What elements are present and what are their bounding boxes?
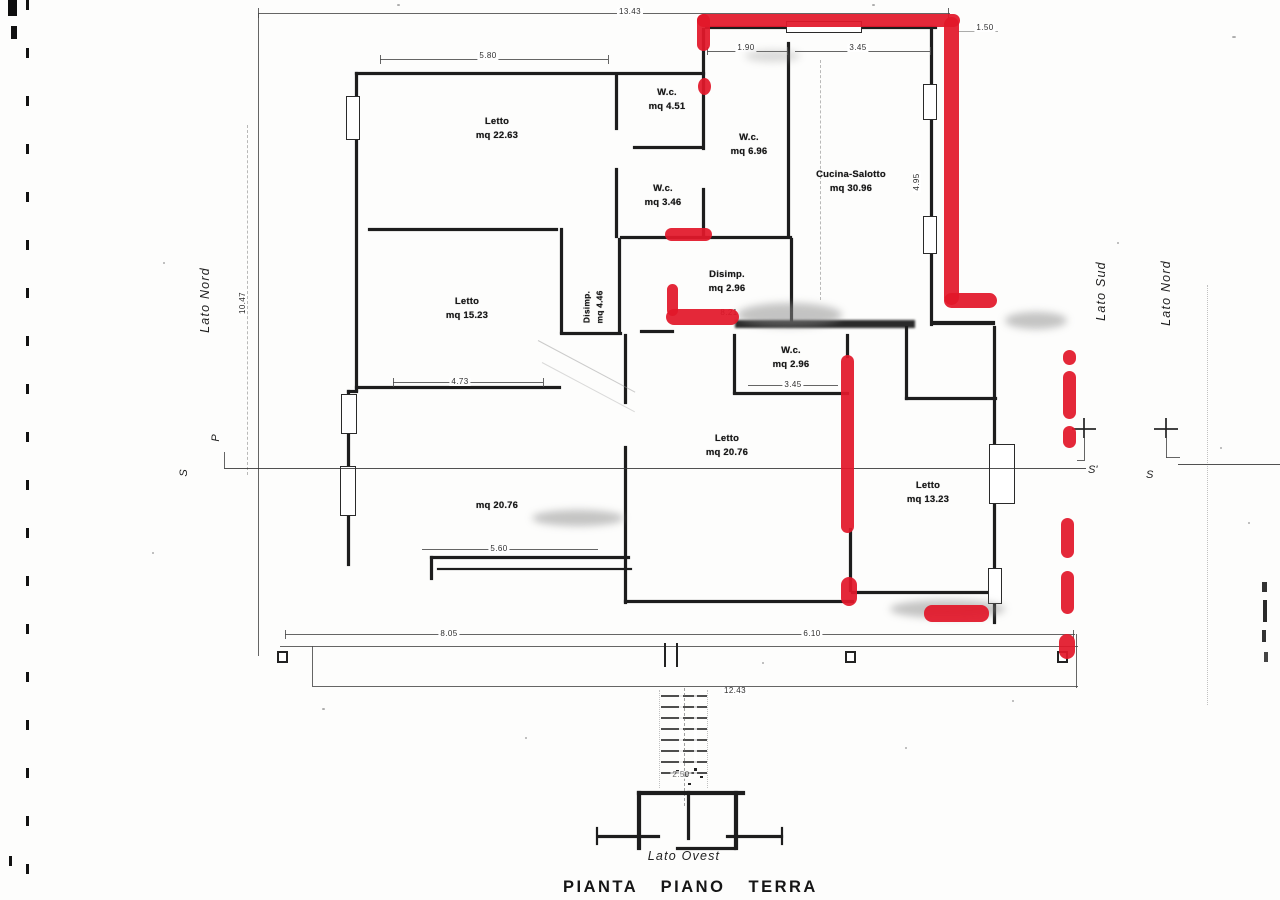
floor-plan-drawing: P S S' S 13.43 5.80 1.90 3.45 1.50 10.47… xyxy=(0,0,1280,900)
section-marker-s-prime: S' xyxy=(1088,464,1097,476)
wall-segment xyxy=(355,386,561,389)
wall-segment xyxy=(355,72,705,75)
wall-segment xyxy=(618,238,621,334)
room-label-bedroom-center: Lettomq 20.76 xyxy=(706,432,748,461)
side-label-west-bottom: Lato Ovest xyxy=(648,849,720,863)
dimension-tick xyxy=(608,55,609,64)
dimension-label: 2.50 xyxy=(670,771,691,779)
boundary-line xyxy=(258,13,259,656)
scan-speck xyxy=(397,4,400,6)
porch-wall xyxy=(734,791,738,850)
scan-speck xyxy=(762,662,764,664)
section-marker-p: P xyxy=(210,434,222,441)
side-label-north-left: Lato Nord xyxy=(198,267,212,333)
stair-mark xyxy=(688,783,691,785)
room-label-bedroom-e: Lettomq 13.23 xyxy=(907,479,949,508)
scan-speck xyxy=(1117,242,1119,244)
scan-fold-line xyxy=(26,0,29,900)
porch-wall xyxy=(726,835,783,838)
room-label-wc-2: W.c.mq 3.46 xyxy=(645,182,682,211)
wall-segment xyxy=(930,26,933,326)
room-label-hallway-2: Disimp.mq 4.46 xyxy=(580,290,606,323)
window-symbol xyxy=(988,568,1002,604)
scan-speck xyxy=(152,552,154,554)
scanned-floor-plan-page: P S S' S 13.43 5.80 1.90 3.45 1.50 10.47… xyxy=(0,0,1280,900)
scan-speck xyxy=(322,708,325,710)
plan-title: PIANTA PIANO TERRA xyxy=(563,878,818,897)
red-marker-stroke xyxy=(665,228,712,241)
stair-edge xyxy=(707,690,708,788)
lot-line xyxy=(247,125,248,475)
wall-segment xyxy=(560,228,563,334)
smudge-mark xyxy=(745,50,800,62)
boundary-line xyxy=(1076,634,1077,688)
wall-segment xyxy=(624,334,627,404)
red-marker-dot xyxy=(698,78,711,95)
dimension-label: 13.43 xyxy=(617,8,643,16)
room-label-wc-4: W.c.mq 2.96 xyxy=(773,344,810,373)
dimension-line xyxy=(285,634,1075,635)
stair-mark xyxy=(700,776,703,778)
dimension-tick xyxy=(543,378,544,387)
scan-speck xyxy=(1264,652,1268,662)
section-cross xyxy=(1083,418,1085,438)
wall-segment xyxy=(733,334,736,394)
scan-speck xyxy=(1263,600,1267,622)
porch-wall xyxy=(598,835,660,838)
window-symbol xyxy=(346,96,360,140)
window-symbol xyxy=(923,84,937,120)
boundary-line xyxy=(312,646,313,686)
section-line xyxy=(224,468,1086,469)
red-marker-stroke xyxy=(697,14,710,51)
scan-speck xyxy=(905,747,907,749)
window-symbol xyxy=(989,444,1015,504)
smudge-mark xyxy=(737,303,842,327)
dimension-label: 10.47 xyxy=(239,290,247,316)
wall-segment xyxy=(640,330,674,333)
dimension-label: 1.50 xyxy=(974,24,995,32)
wall-segment xyxy=(615,168,618,238)
dimension-label: 5.80 xyxy=(477,52,498,60)
section-marker-s-right: S xyxy=(1146,469,1153,481)
smudge-mark xyxy=(1005,312,1067,329)
dimension-tick xyxy=(930,47,931,55)
dimension-label: 12.43 xyxy=(722,687,748,695)
stair-step-gap xyxy=(694,695,697,777)
scan-fold-line xyxy=(1207,285,1208,705)
porch-wall xyxy=(596,827,598,845)
scan-speck xyxy=(1262,582,1267,592)
section-tick xyxy=(224,452,225,468)
wall-segment xyxy=(437,568,632,570)
room-label-hallway-1: Disimp.mq 2.96 xyxy=(709,268,746,297)
wall-segment xyxy=(430,556,433,580)
wall-segment xyxy=(787,42,790,238)
wall-segment xyxy=(560,332,622,335)
scan-speck xyxy=(1262,630,1266,642)
red-marker-stroke xyxy=(666,309,739,325)
boundary-line xyxy=(312,686,1078,687)
pillar-symbol xyxy=(277,651,288,663)
red-marker-stroke xyxy=(1063,371,1076,419)
window-symbol xyxy=(341,394,357,434)
section-connector xyxy=(1166,438,1167,458)
smudge-mark xyxy=(532,510,624,526)
red-marker-stroke xyxy=(1063,426,1076,448)
room-label-wc-3: W.c.mq 6.96 xyxy=(731,131,768,160)
stair-mark xyxy=(694,768,697,771)
stair-edge xyxy=(659,690,660,788)
scan-fold-line xyxy=(9,856,12,900)
wall-segment xyxy=(933,321,995,325)
red-marker-stroke xyxy=(944,293,997,308)
room-label-kitchen-living: Cucina-Salottomq 30.96 xyxy=(816,168,886,197)
scan-speck xyxy=(11,26,17,39)
gate-mark xyxy=(664,643,666,667)
room-label-room-sw: mq 20.76 xyxy=(476,499,518,513)
wall-segment xyxy=(905,326,908,400)
section-connector xyxy=(1084,438,1085,460)
section-line xyxy=(1178,464,1280,465)
red-marker-dot xyxy=(841,577,857,606)
room-label-bedroom-nw: Lettomq 22.63 xyxy=(476,115,518,144)
porch-wall xyxy=(637,791,745,795)
porch-wall xyxy=(687,791,690,840)
wall-segment xyxy=(430,556,630,559)
section-marker-s-left: S xyxy=(178,469,190,476)
red-marker-stroke xyxy=(1063,350,1076,365)
red-marker-stroke xyxy=(1061,571,1074,614)
window-symbol xyxy=(340,466,356,516)
dimension-tick xyxy=(380,55,381,64)
stair-center-line xyxy=(684,688,685,806)
wall-segment xyxy=(615,75,618,130)
dimension-label: 8.05 xyxy=(438,630,459,638)
red-marker-dot xyxy=(1059,634,1075,659)
scan-speck xyxy=(1012,700,1014,702)
dimension-tick xyxy=(393,378,394,387)
side-label-south-right: Lato Sud xyxy=(1094,261,1108,321)
window-symbol xyxy=(923,216,937,254)
side-label-north-right: Lato Nord xyxy=(1159,260,1173,326)
dimension-label: 3.45 xyxy=(782,381,803,389)
scan-speck xyxy=(1248,522,1250,524)
room-label-bedroom-w: Lettomq 15.23 xyxy=(446,295,488,324)
red-marker-stroke xyxy=(841,355,854,533)
pillar-symbol xyxy=(845,651,856,663)
porch-wall xyxy=(781,827,783,845)
scan-speck xyxy=(872,4,875,6)
scan-speck xyxy=(1232,36,1236,38)
dimension-label: 3.45 xyxy=(847,44,868,52)
scan-speck xyxy=(1220,447,1222,449)
porch-wall xyxy=(637,791,641,850)
wall-segment xyxy=(368,228,558,231)
wall-segment xyxy=(905,397,997,400)
red-marker-stroke xyxy=(924,605,989,622)
section-connector xyxy=(1077,460,1085,461)
wall-segment xyxy=(633,146,703,149)
stair-step-gap xyxy=(679,695,683,777)
scan-speck xyxy=(8,0,17,16)
red-marker-stroke xyxy=(1061,518,1074,558)
dimension-label: 4.95 xyxy=(913,171,921,192)
red-marker-stroke xyxy=(697,14,960,27)
dimension-label: 4.73 xyxy=(449,378,470,386)
room-label-wc-1: W.c.mq 4.51 xyxy=(649,86,686,115)
wall-segment xyxy=(851,591,997,594)
gate-mark xyxy=(676,643,678,667)
wall-segment xyxy=(624,600,854,603)
wall-segment xyxy=(624,446,627,604)
dimension-line xyxy=(422,549,598,550)
scan-speck xyxy=(163,262,165,264)
dimension-tick xyxy=(285,630,286,639)
red-marker-stroke xyxy=(944,17,959,305)
scan-speck xyxy=(525,737,527,739)
boundary-line xyxy=(280,646,1078,647)
section-connector xyxy=(1166,457,1180,458)
wall-segment xyxy=(733,392,849,395)
dimension-label: 6.10 xyxy=(801,630,822,638)
section-cross xyxy=(1165,418,1167,438)
dimension-label: 5.60 xyxy=(488,545,509,553)
